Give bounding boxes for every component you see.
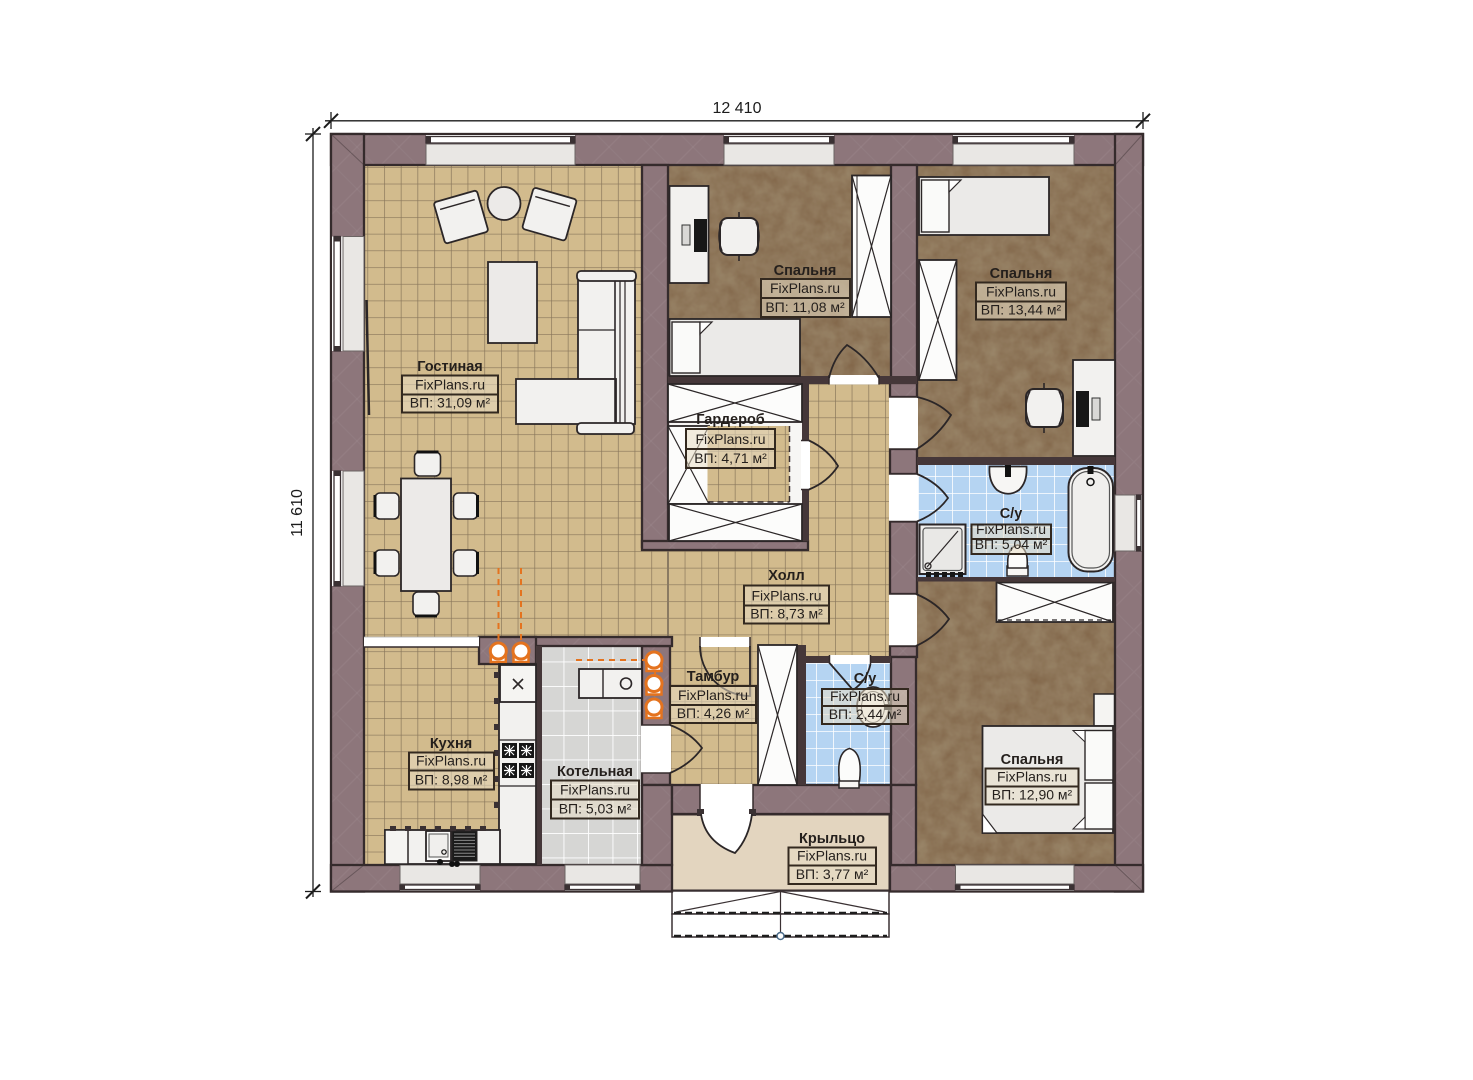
svg-text:FixPlans.ru: FixPlans.ru — [986, 284, 1056, 300]
svg-text:ВП: 13,44 м²: ВП: 13,44 м² — [981, 302, 1062, 318]
svg-text:Спальня: Спальня — [990, 266, 1053, 282]
svg-text:Спальня: Спальня — [774, 263, 837, 279]
svg-text:Гардероб: Гардероб — [696, 412, 765, 428]
svg-text:FixPlans.ru: FixPlans.ru — [416, 753, 486, 769]
svg-text:ВП: 4,26 м²: ВП: 4,26 м² — [677, 705, 750, 721]
svg-text:ВП: 5,03 м²: ВП: 5,03 м² — [559, 801, 632, 817]
svg-text:ВП: 31,09 м²: ВП: 31,09 м² — [410, 395, 491, 411]
svg-text:12 410: 12 410 — [713, 100, 762, 117]
svg-text:С/у: С/у — [854, 671, 877, 687]
svg-text:FixPlans.ru: FixPlans.ru — [751, 588, 821, 604]
svg-text:ВП: 11,08 м²: ВП: 11,08 м² — [765, 299, 845, 315]
svg-text:ВП: 8,73 м²: ВП: 8,73 м² — [750, 606, 823, 622]
svg-text:FixPlans.ru: FixPlans.ru — [770, 280, 840, 296]
svg-text:Гостиная: Гостиная — [417, 359, 483, 375]
svg-text:FixPlans.ru: FixPlans.ru — [560, 782, 630, 798]
svg-text:FixPlans.ru: FixPlans.ru — [678, 687, 748, 703]
svg-text:ВП: 3,77 м²: ВП: 3,77 м² — [796, 866, 869, 882]
svg-text:FixPlans.ru: FixPlans.ru — [415, 377, 485, 393]
svg-text:Крыльцо: Крыльцо — [799, 831, 865, 847]
svg-text:ВП: 2,44 м²: ВП: 2,44 м² — [829, 706, 902, 722]
svg-text:ВП: 8,98 м²: ВП: 8,98 м² — [415, 772, 488, 788]
svg-text:ВП: 12,90 м²: ВП: 12,90 м² — [992, 787, 1073, 803]
svg-text:Тамбур: Тамбур — [687, 669, 740, 685]
svg-text:FixPlans.ru: FixPlans.ru — [830, 688, 900, 704]
svg-text:FixPlans.ru: FixPlans.ru — [976, 521, 1046, 537]
svg-text:С/у: С/у — [1000, 506, 1023, 522]
svg-text:ВП: 5,04 м²: ВП: 5,04 м² — [975, 536, 1048, 552]
svg-text:Котельная: Котельная — [557, 764, 633, 780]
svg-text:11 610: 11 610 — [289, 489, 306, 537]
svg-text:ВП: 4,71 м²: ВП: 4,71 м² — [694, 450, 767, 466]
svg-text:FixPlans.ru: FixPlans.ru — [695, 431, 765, 447]
svg-text:Кухня: Кухня — [430, 736, 472, 752]
svg-text:Спальня: Спальня — [1001, 752, 1064, 768]
svg-text:FixPlans.ru: FixPlans.ru — [997, 769, 1067, 785]
svg-text:FixPlans.ru: FixPlans.ru — [797, 848, 867, 864]
svg-text:Холл: Холл — [768, 568, 804, 584]
